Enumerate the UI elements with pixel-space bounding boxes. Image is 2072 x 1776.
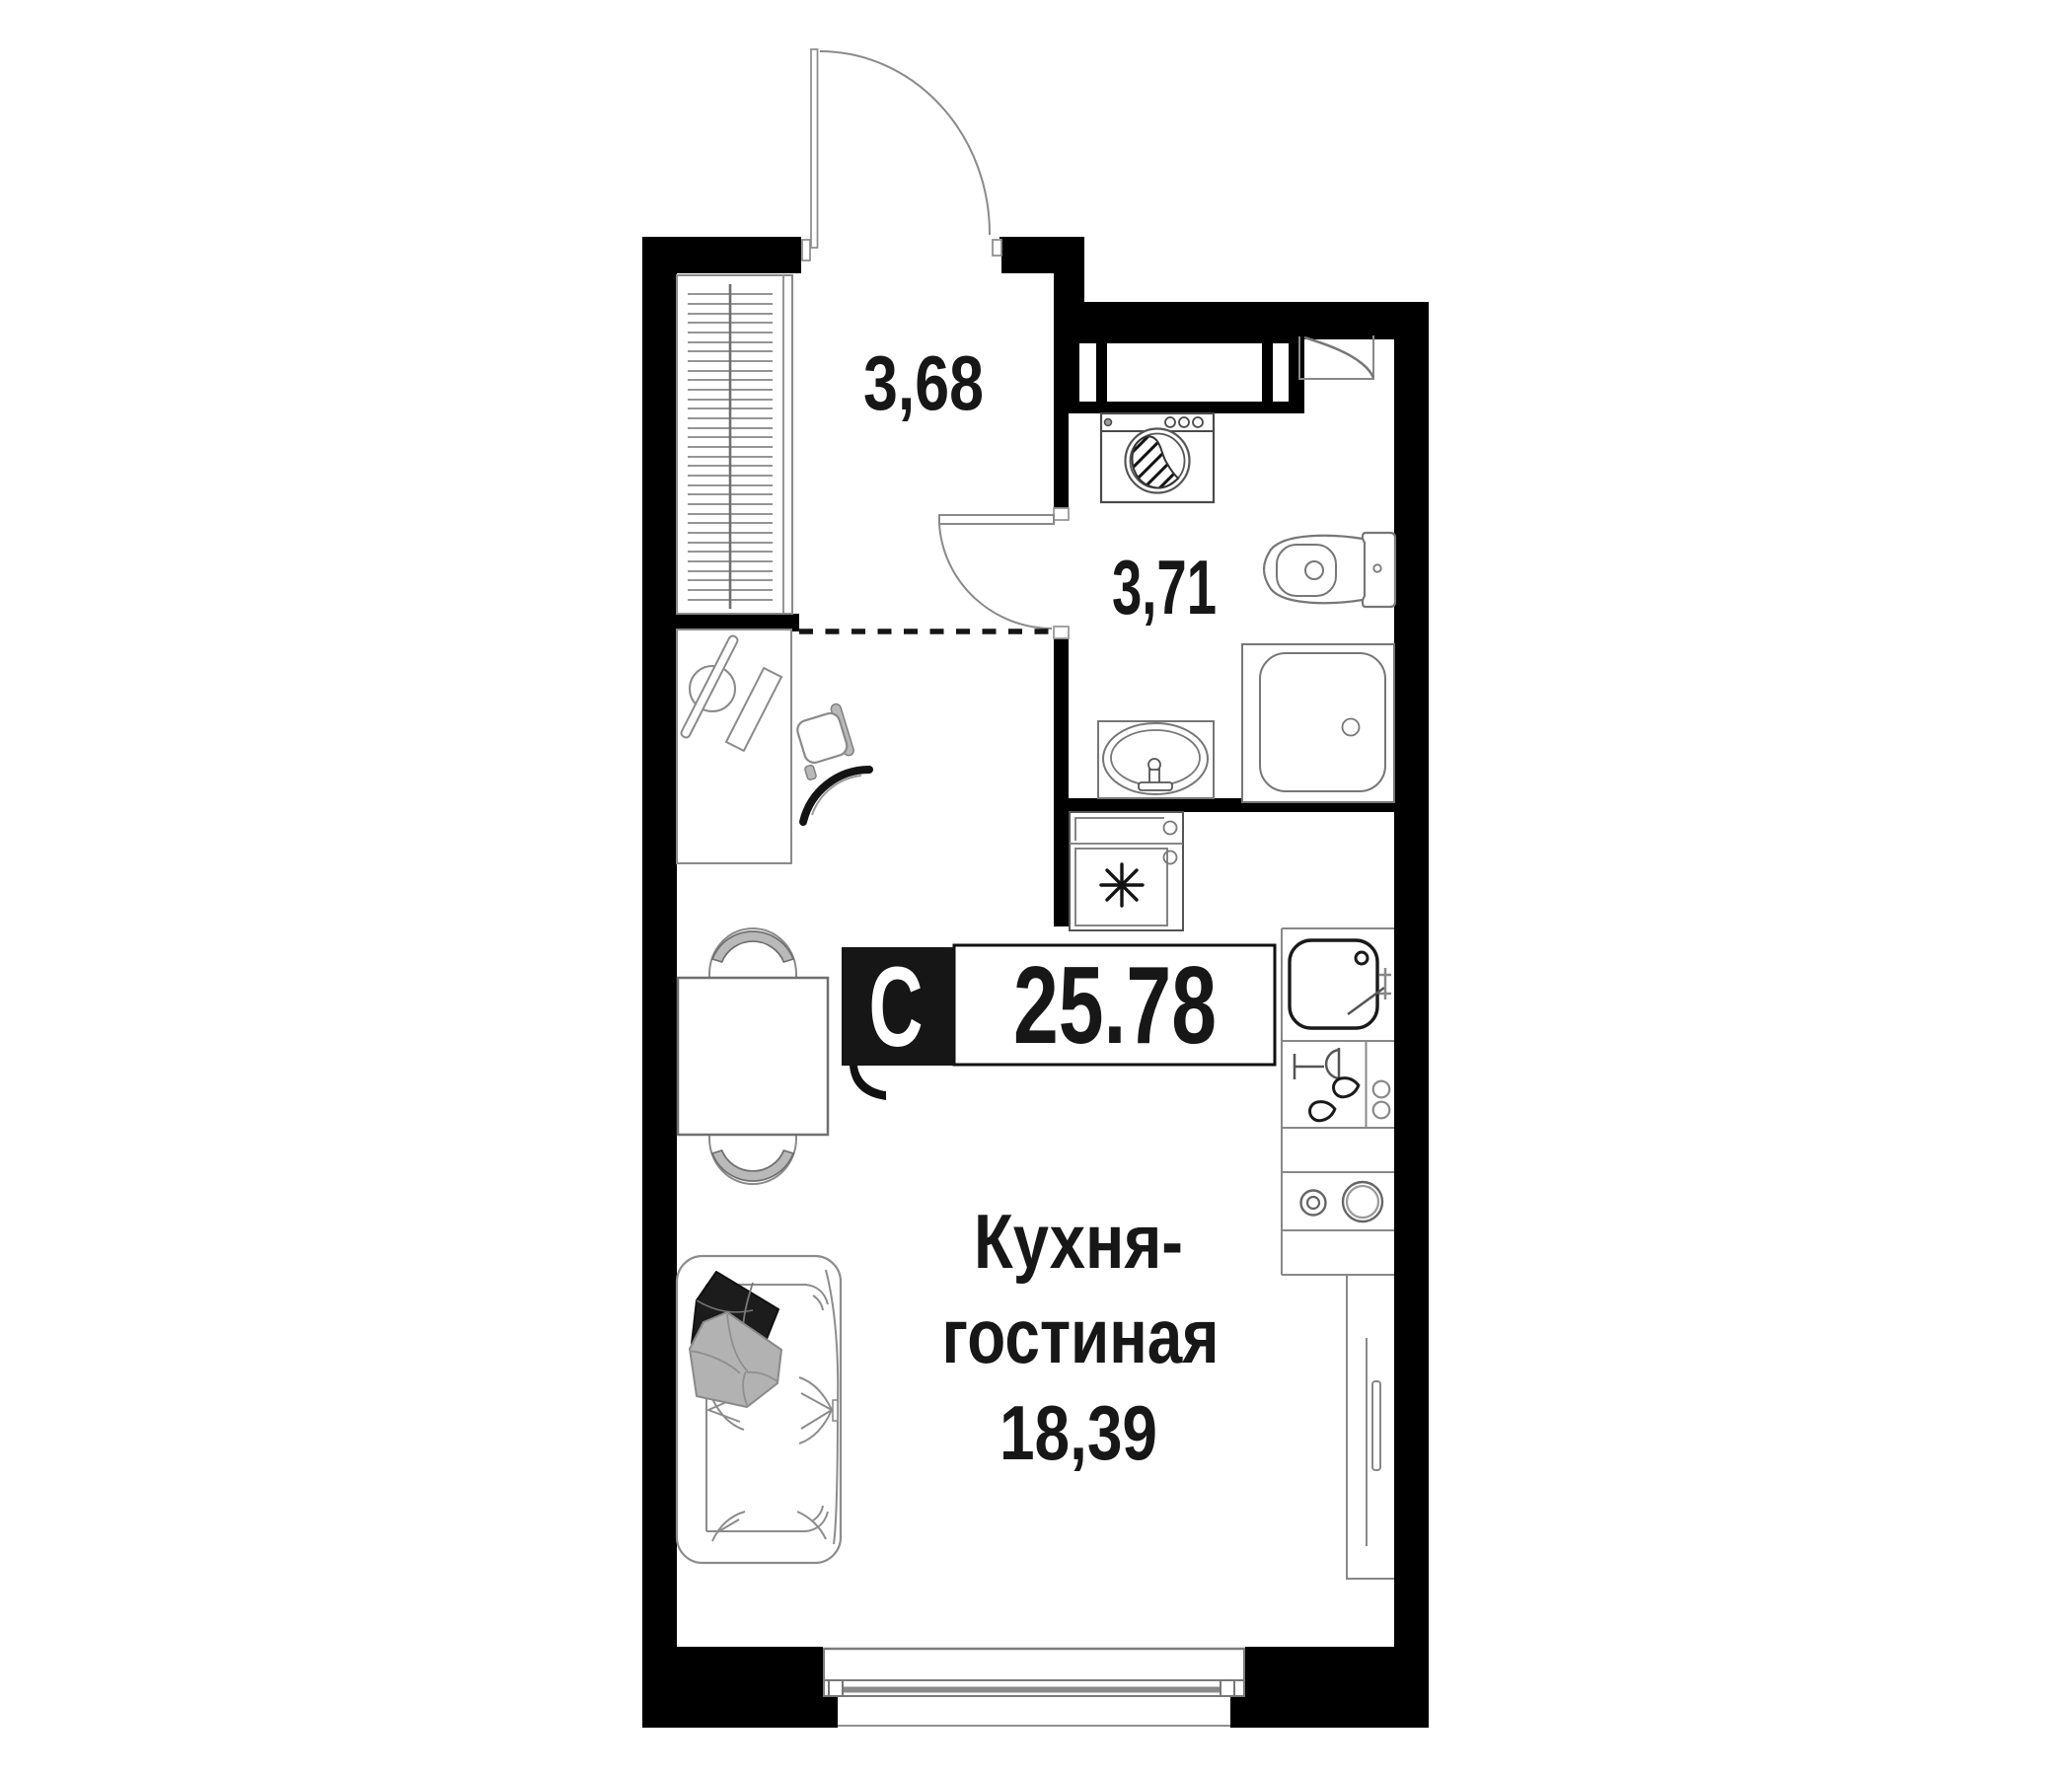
svg-text:3,68: 3,68 bbox=[863, 339, 984, 426]
svg-text:25.78: 25.78 bbox=[1013, 944, 1217, 1067]
svg-text:С: С bbox=[869, 944, 924, 1071]
svg-text:3,71: 3,71 bbox=[1112, 544, 1217, 630]
svg-text:Кухня-: Кухня- bbox=[974, 1198, 1183, 1285]
svg-text:18,39: 18,39 bbox=[999, 1389, 1157, 1476]
svg-text:гостиная: гостиная bbox=[942, 1293, 1220, 1379]
